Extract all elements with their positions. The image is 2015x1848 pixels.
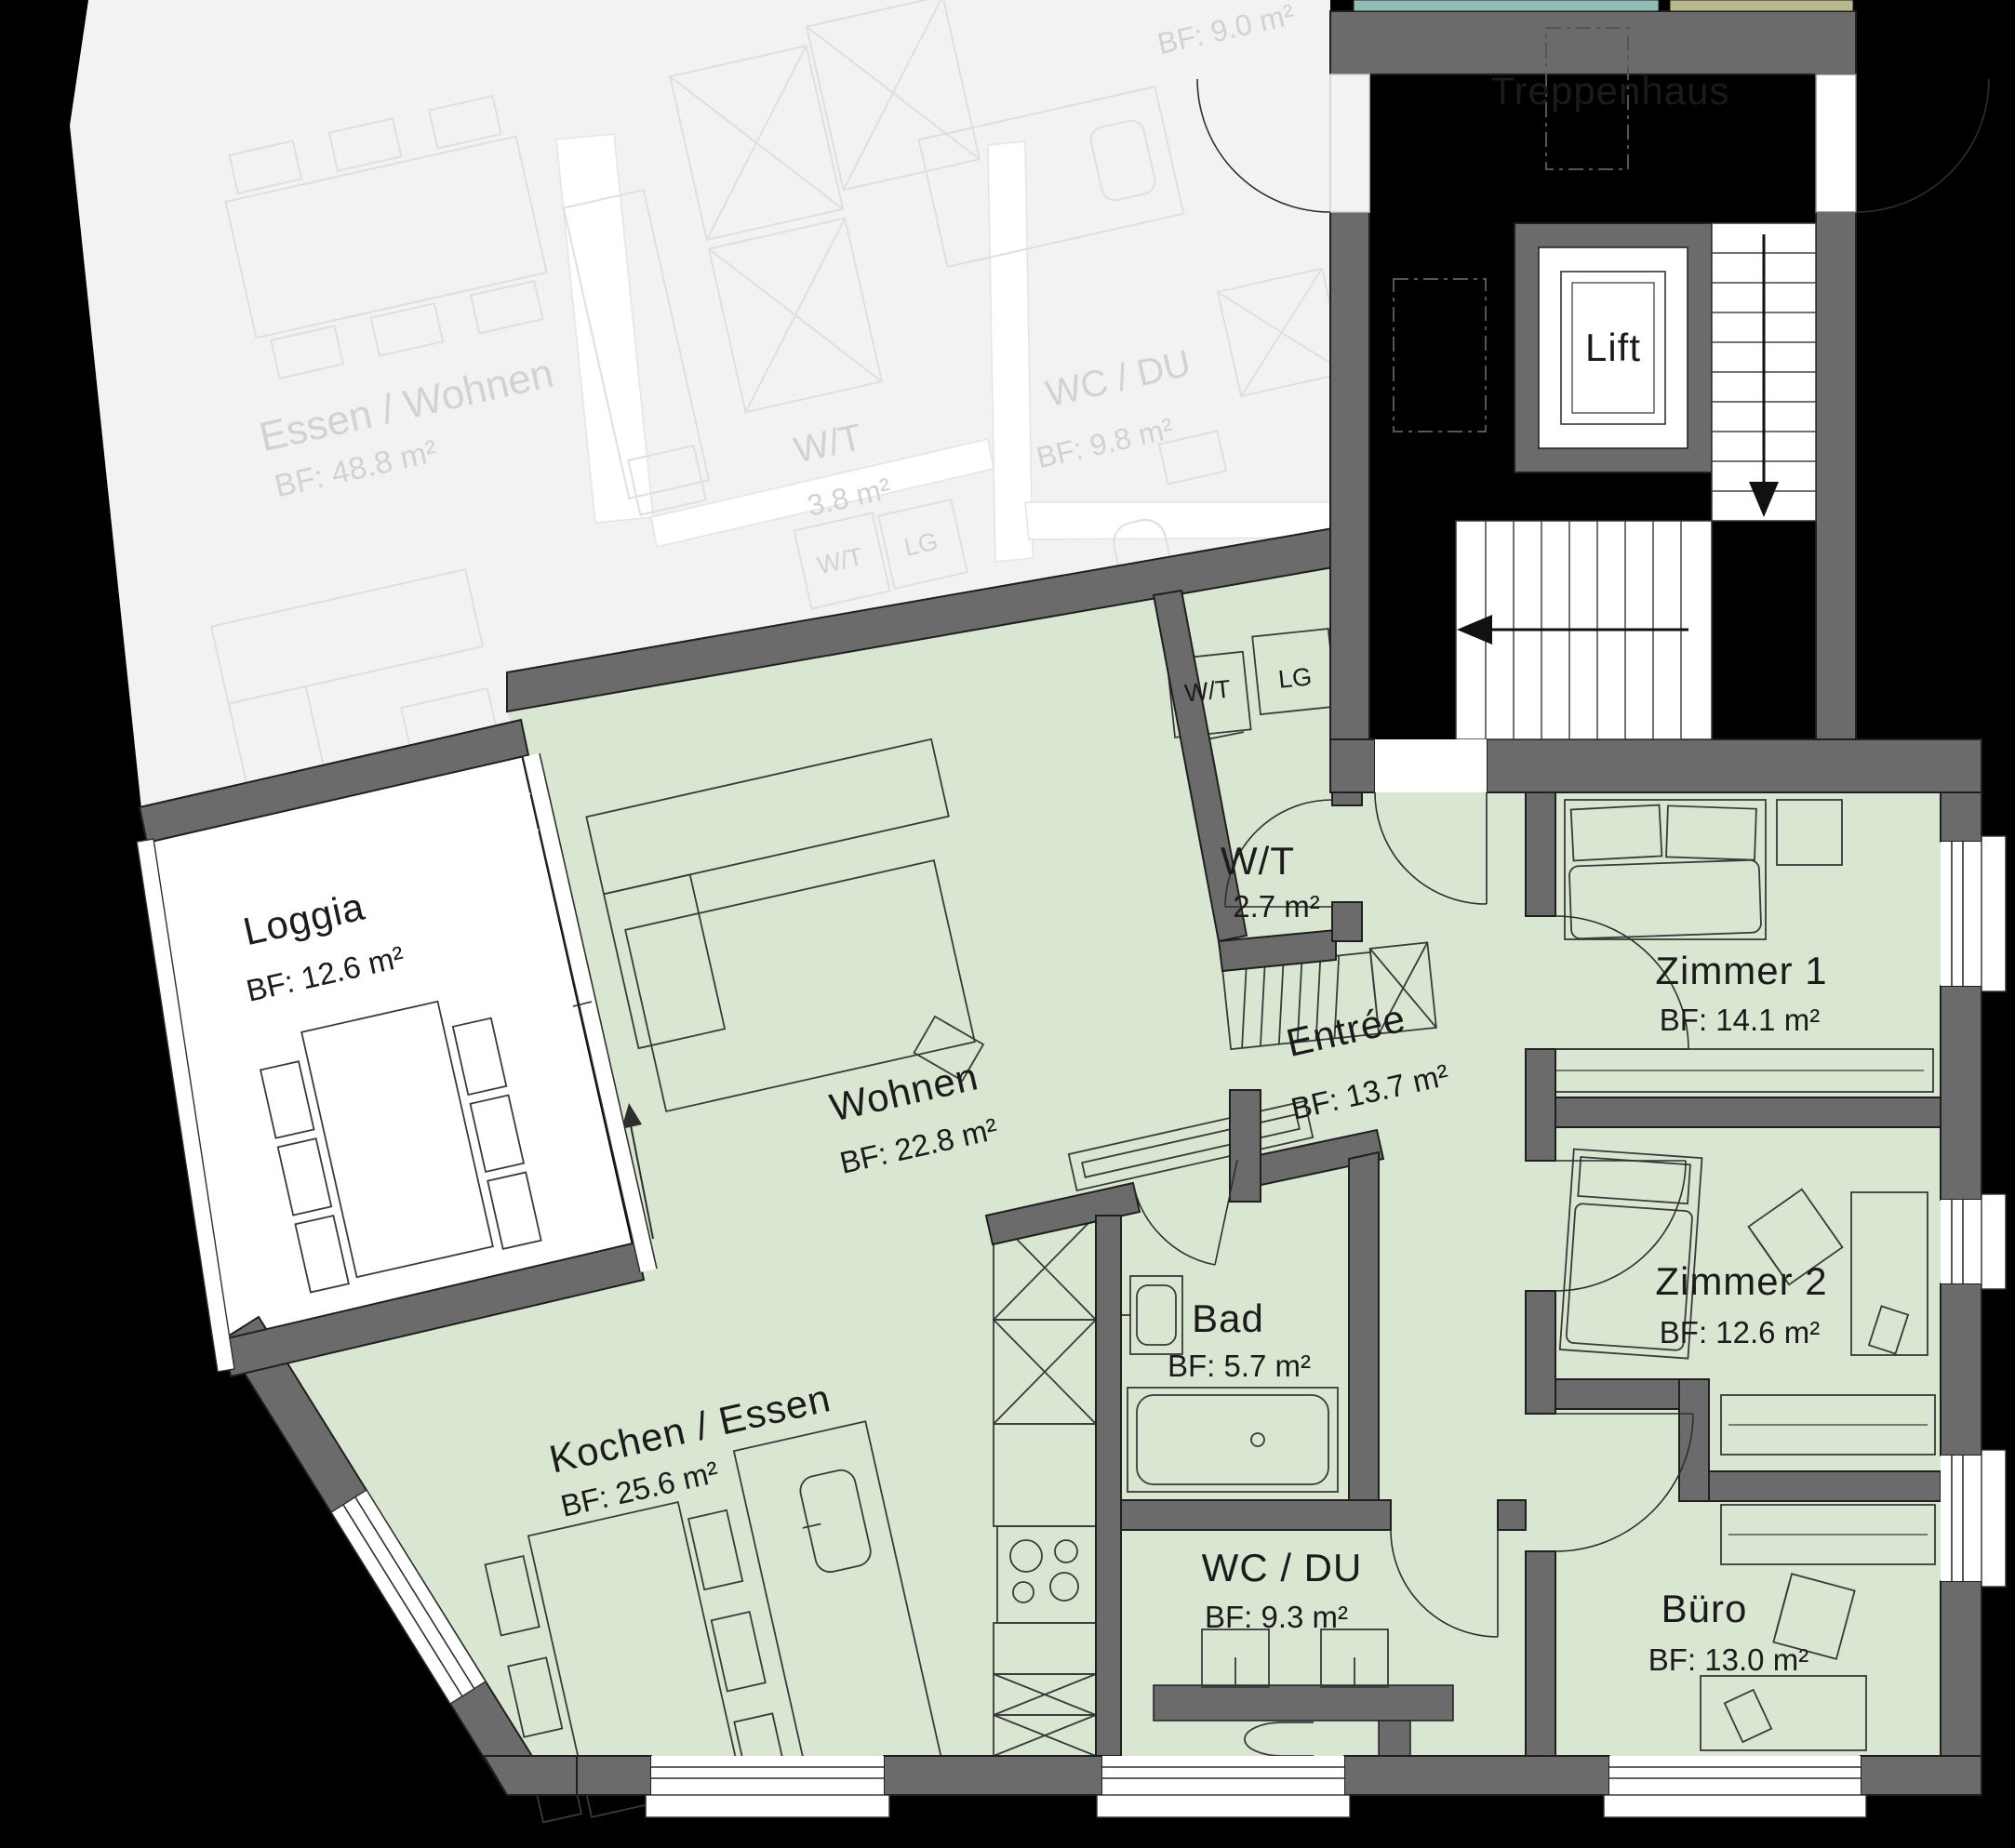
stair-flight-right <box>1712 223 1816 521</box>
wcdu-stub-wall <box>1379 1721 1410 1756</box>
room-label-zimmer1: Zimmer 1 <box>1655 949 1827 992</box>
wt-cabinet-label: LG <box>1277 662 1314 694</box>
wt-washer-label: W/T <box>1183 675 1232 708</box>
upper-unit-strip-teal <box>1354 0 1659 11</box>
window-wcdu-south <box>1097 1756 1350 1817</box>
room-area-zimmer2: BF: 12.6 m² <box>1660 1315 1820 1349</box>
room-label-zimmer2: Zimmer 2 <box>1655 1259 1827 1303</box>
window-buero-south <box>1604 1756 1866 1817</box>
stairwell-label: Treppenhaus <box>1491 69 1730 113</box>
room-area-wt: 2.7 m² <box>1233 889 1320 924</box>
room-label-bad: Bad <box>1192 1296 1264 1340</box>
room-label-buero: Büro <box>1661 1587 1748 1630</box>
wcdu-vanity-counter <box>1154 1685 1453 1721</box>
upper-unit-strip-olive <box>1670 0 1853 11</box>
entrance-door-gap <box>1375 739 1487 792</box>
room-area-bad: BF: 5.7 m² <box>1168 1349 1311 1383</box>
window-zimmer1 <box>1941 836 2006 991</box>
floorplan-canvas: Essen / Wohnen BF: 48.8 m² W/T 3.8 m² WC… <box>0 0 2015 1848</box>
window-zimmer2 <box>1941 1194 2006 1289</box>
window-buero-east <box>1941 1450 2006 1587</box>
lift-label: Lift <box>1585 326 1641 369</box>
window-kochen-south <box>646 1756 889 1817</box>
room-area-wcdu: BF: 9.3 m² <box>1205 1600 1348 1634</box>
room-area-buero: BF: 13.0 m² <box>1648 1642 1808 1677</box>
room-label-wcdu: WC / DU <box>1202 1546 1363 1589</box>
room-area-zimmer1: BF: 14.1 m² <box>1660 1003 1820 1037</box>
room-label-wt: W/T <box>1221 839 1295 883</box>
stair-flight-bottom <box>1456 521 1712 739</box>
